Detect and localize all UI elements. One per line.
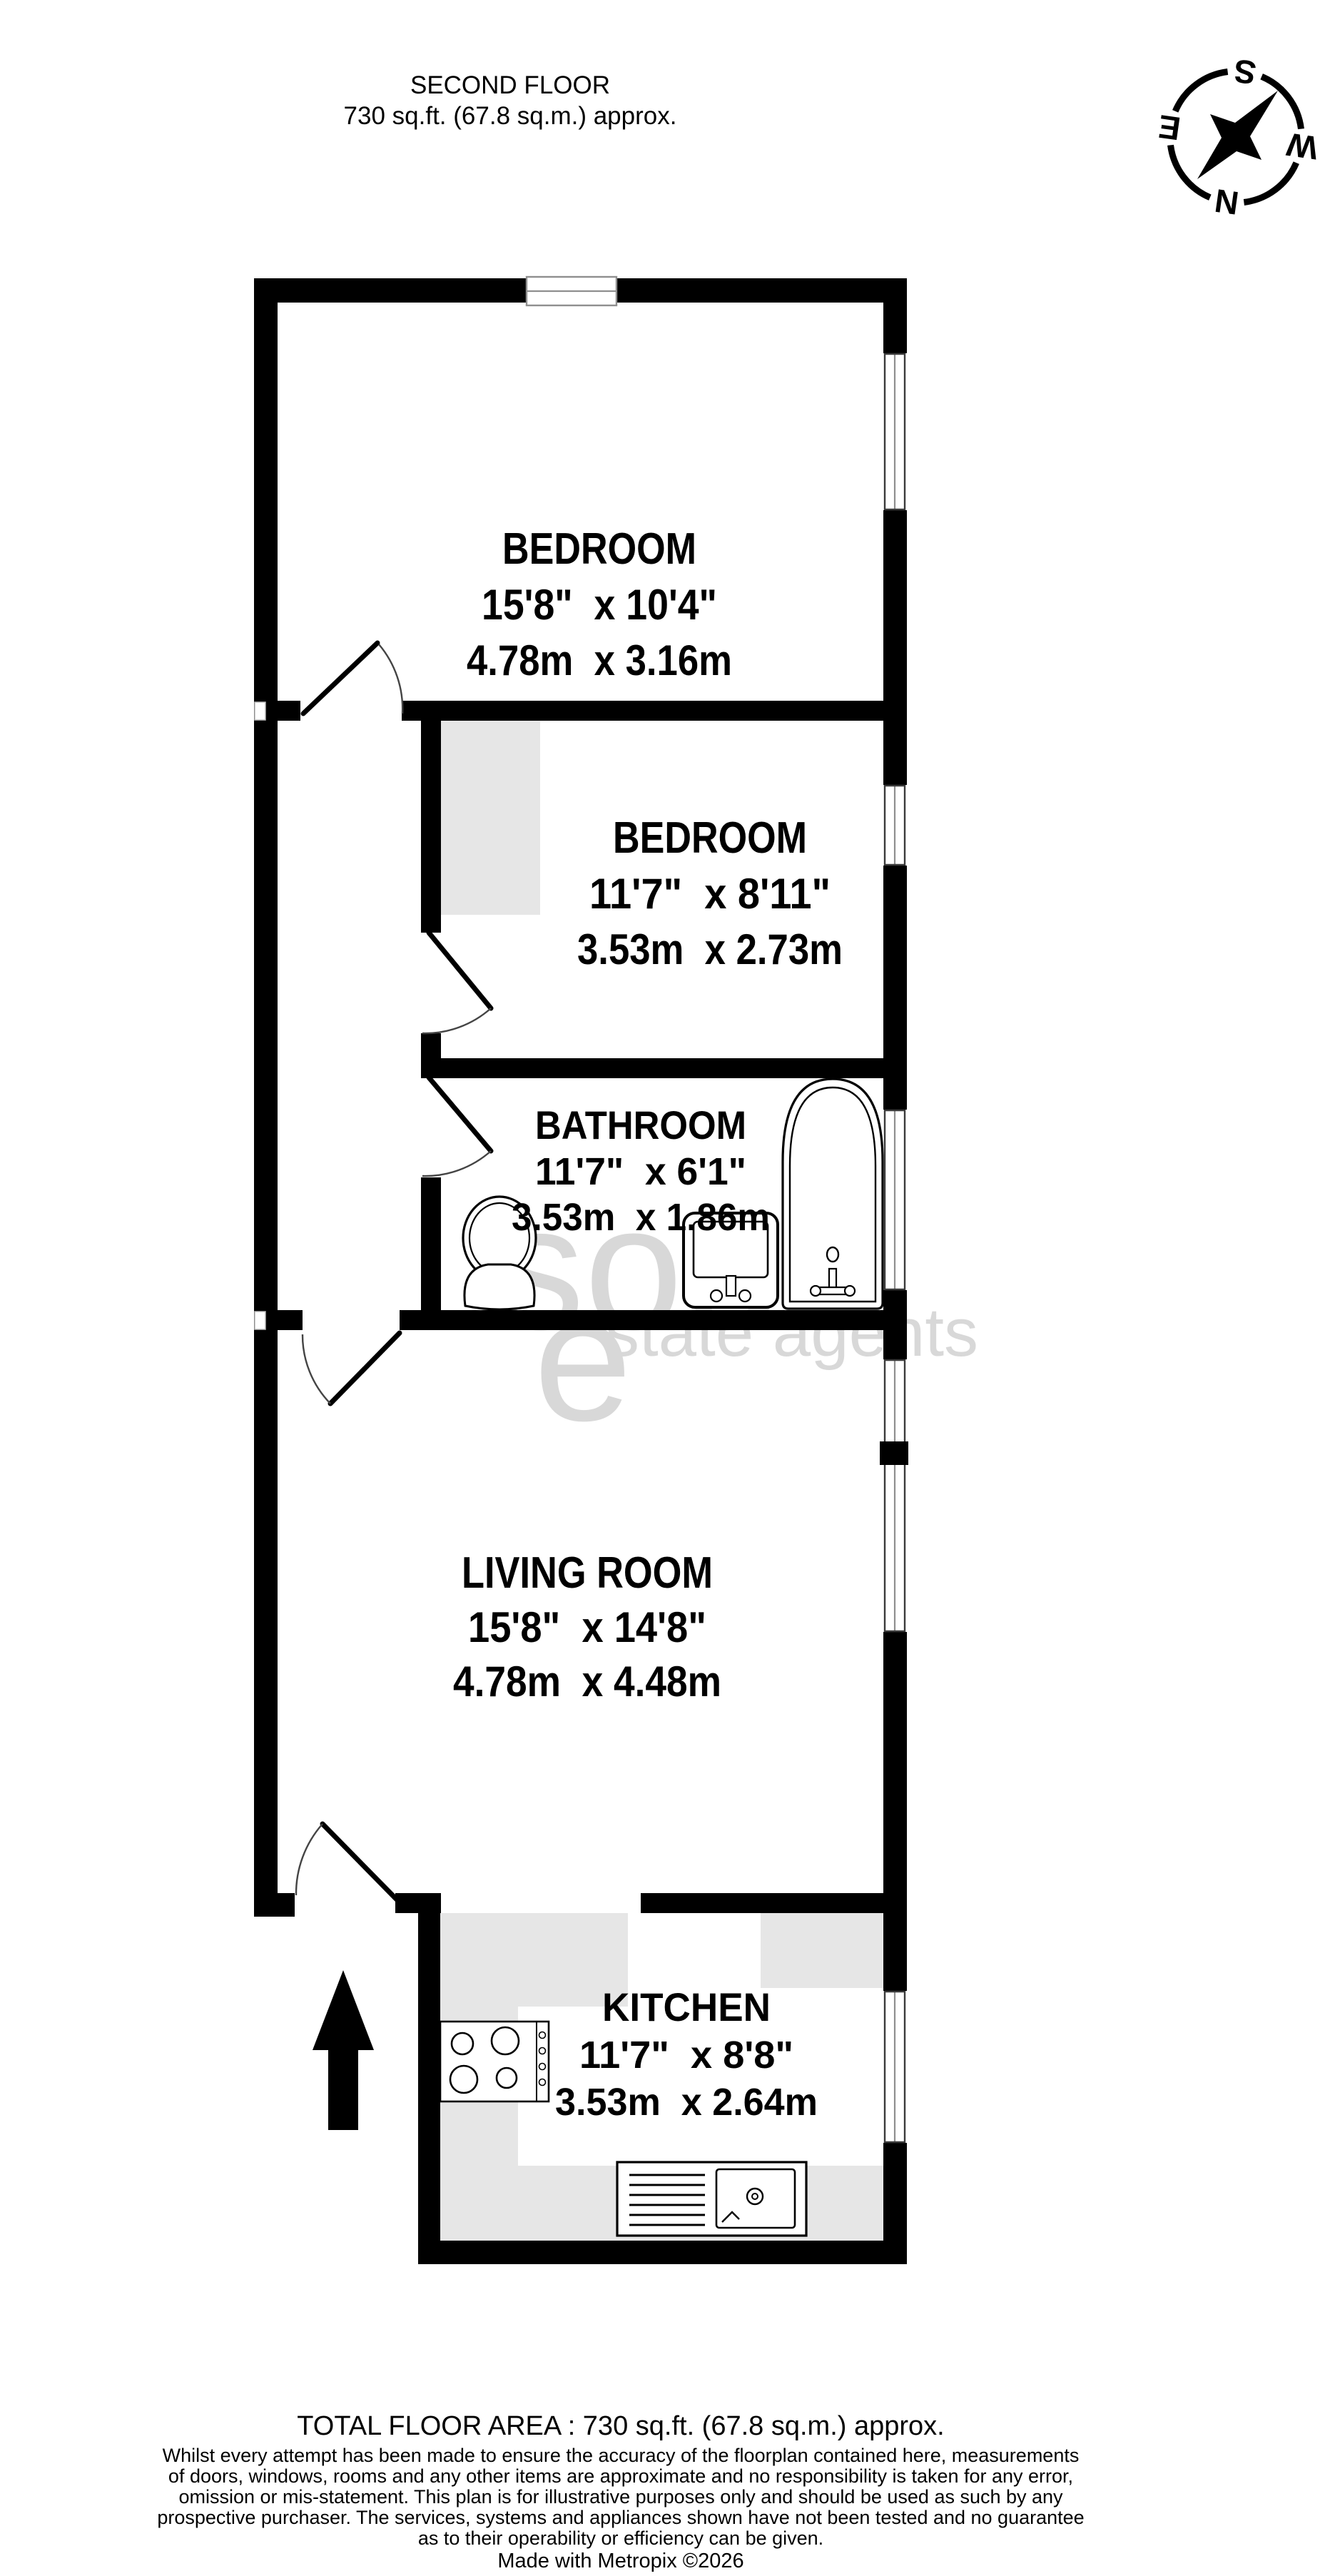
compass-letter-n: N	[1212, 182, 1241, 222]
footer-disclaimer-line: prospective purchaser. The services, sys…	[157, 2507, 1084, 2528]
room-dims-metric: 3.53m x 1.86m	[512, 1196, 770, 1239]
room-name: BEDROOM	[502, 524, 696, 574]
compass-letter-s: S	[1232, 52, 1259, 92]
wall-living-bottom-stub	[395, 1893, 441, 1913]
hob-control-knob	[539, 2079, 546, 2086]
window-bedroom1-right	[882, 353, 908, 510]
compass-ring-arc	[1244, 156, 1296, 208]
bedroom2-wardrobe	[440, 721, 540, 915]
room-dims-metric: 4.78m x 4.48m	[453, 1658, 721, 1705]
compass-ring-arc	[1164, 145, 1216, 197]
bathtub-drain	[827, 1247, 838, 1262]
window-living-right-1	[882, 1359, 908, 1441]
window-bathroom-right	[882, 1110, 908, 1290]
door-leaf	[323, 1824, 397, 1900]
room-dims-imperial: 15'8" x 10'4"	[482, 581, 717, 629]
window-bedroom1-top	[527, 277, 616, 305]
room-name: LIVING ROOM	[462, 1548, 713, 1598]
wall-bathroom-bottom	[400, 1310, 907, 1330]
wall-top-left-segment	[254, 278, 527, 303]
toilet-base	[465, 1264, 534, 1309]
wall-bedroom2-bottom	[421, 1058, 907, 1078]
bathtub	[783, 1079, 883, 1309]
wall-bathroom-left-stub	[421, 1177, 441, 1313]
hob-control-knob	[539, 2032, 546, 2039]
sink-tap-knob	[711, 1290, 722, 1302]
hob-control-knob	[539, 2048, 546, 2054]
room-label-living-room: LIVING ROOM 15'8" x 14'8" 4.78m x 4.48m	[453, 1548, 721, 1705]
room-name: KITCHEN	[602, 1984, 771, 2029]
window-living-right-2	[882, 1465, 908, 1632]
wall-junction-notch-hall	[255, 702, 265, 720]
compass-letter-w: W	[1284, 126, 1320, 167]
room-label-bathroom: BATHROOM 11'7" x 6'1" 3.53m x 1.86m	[512, 1102, 770, 1239]
wall-left	[254, 278, 278, 1917]
door-leaf	[429, 1077, 491, 1151]
hob-burner	[452, 2033, 473, 2054]
window-kitchen-right	[882, 1991, 908, 2143]
door-leaf	[330, 1333, 400, 1404]
room-label-bedroom2: BEDROOM 11'7" x 8'11" 3.53m x 2.73m	[577, 813, 843, 973]
footer-disclaimer-line: as to their operability or efficiency ca…	[418, 2527, 823, 2549]
window-pier-living	[880, 1441, 908, 1465]
wall-top-right-segment	[616, 278, 907, 303]
floorplan-page: sou e state agents	[0, 0, 1330, 2576]
footer-disclaimer-line: of doors, windows, rooms and any other i…	[168, 2465, 1073, 2487]
door-swing-arc	[296, 1824, 323, 1895]
sink-tap-stem	[726, 1276, 736, 1296]
sink-plughole-center	[752, 2194, 758, 2199]
compass-star-icon	[1197, 91, 1278, 179]
wall-kitchen-left	[418, 1913, 440, 2264]
hob	[440, 2022, 549, 2101]
footer-total-area: TOTAL FLOOR AREA : 730 sq.ft. (67.8 sq.m…	[297, 2411, 944, 2441]
footer: TOTAL FLOOR AREA : 730 sq.ft. (67.8 sq.m…	[157, 2411, 1084, 2572]
room-name: BATHROOM	[535, 1102, 746, 1147]
hob-control-knob	[539, 2064, 546, 2070]
sink-tap-knob	[739, 1290, 751, 1302]
door-swing-arc	[422, 1008, 491, 1033]
door-swing-arc	[379, 644, 402, 714]
door-kitchen	[296, 1824, 397, 1900]
room-dims-imperial: 11'7" x 8'11"	[589, 870, 831, 918]
wall-living-bottom-corner	[254, 1893, 295, 1917]
wall-living-bottom-right	[641, 1893, 907, 1913]
header: SECOND FLOOR 730 sq.ft. (67.8 sq.m.) app…	[344, 71, 677, 130]
wall-bedroom2-left-stub	[421, 1033, 441, 1060]
room-dims-metric: 4.78m x 3.16m	[467, 637, 732, 684]
page-subtitle: 730 sq.ft. (67.8 sq.m.) approx.	[344, 102, 677, 130]
room-name: BEDROOM	[613, 813, 807, 863]
hob-burner	[492, 2027, 519, 2054]
bathtub-tap-knob	[811, 1286, 821, 1296]
bathtub-tap-knob	[845, 1286, 855, 1296]
room-dims-imperial: 11'7" x 6'1"	[535, 1150, 746, 1193]
hob-burner	[497, 2068, 517, 2088]
bathtub-tap-stem	[829, 1269, 836, 1289]
compass-ring-arc	[1175, 65, 1227, 117]
compass: N E S W	[1147, 43, 1329, 232]
hob-burner	[450, 2066, 477, 2093]
door-living-room	[303, 1333, 400, 1404]
door-bathroom	[422, 1077, 491, 1176]
floorplan-canvas: sou e state agents	[0, 0, 1330, 2576]
door-bedroom1	[303, 643, 402, 714]
door-swing-arc	[303, 1334, 330, 1404]
room-dims-metric: 3.53m x 2.64m	[555, 2081, 818, 2124]
wall-kitchen-bottom	[418, 2241, 907, 2264]
window-bedroom2-right	[882, 785, 908, 866]
wall-bedroom2-left	[421, 721, 441, 933]
footer-disclaimer-line: Whilst every attempt has been made to en…	[163, 2445, 1080, 2466]
kitchen-sink	[617, 2162, 806, 2236]
room-label-bedroom1: BEDROOM 15'8" x 10'4" 4.78m x 3.16m	[467, 524, 732, 684]
page-title: SECOND FLOOR	[410, 71, 610, 99]
wall-junction-notch-living	[255, 1312, 265, 1329]
door-bedroom2	[422, 933, 491, 1033]
room-dims-imperial: 15'8" x 14'8"	[468, 1603, 706, 1651]
room-dims-imperial: 11'7" x 8'8"	[579, 2034, 793, 2076]
entrance-arrow-icon	[313, 1970, 374, 2130]
footer-credit: Made with Metropix ©2026	[497, 2550, 743, 2572]
room-dims-metric: 3.53m x 2.73m	[577, 926, 843, 973]
door-swing-arc	[422, 1151, 491, 1176]
door-leaf	[429, 933, 491, 1008]
kitchen-counter-top-right	[761, 1913, 883, 1988]
footer-disclaimer-line: omission or mis-statement. This plan is …	[178, 2486, 1063, 2507]
compass-letter-e: E	[1156, 108, 1183, 148]
door-leaf	[303, 643, 377, 714]
wall-bedroom1-bottom	[402, 701, 907, 721]
